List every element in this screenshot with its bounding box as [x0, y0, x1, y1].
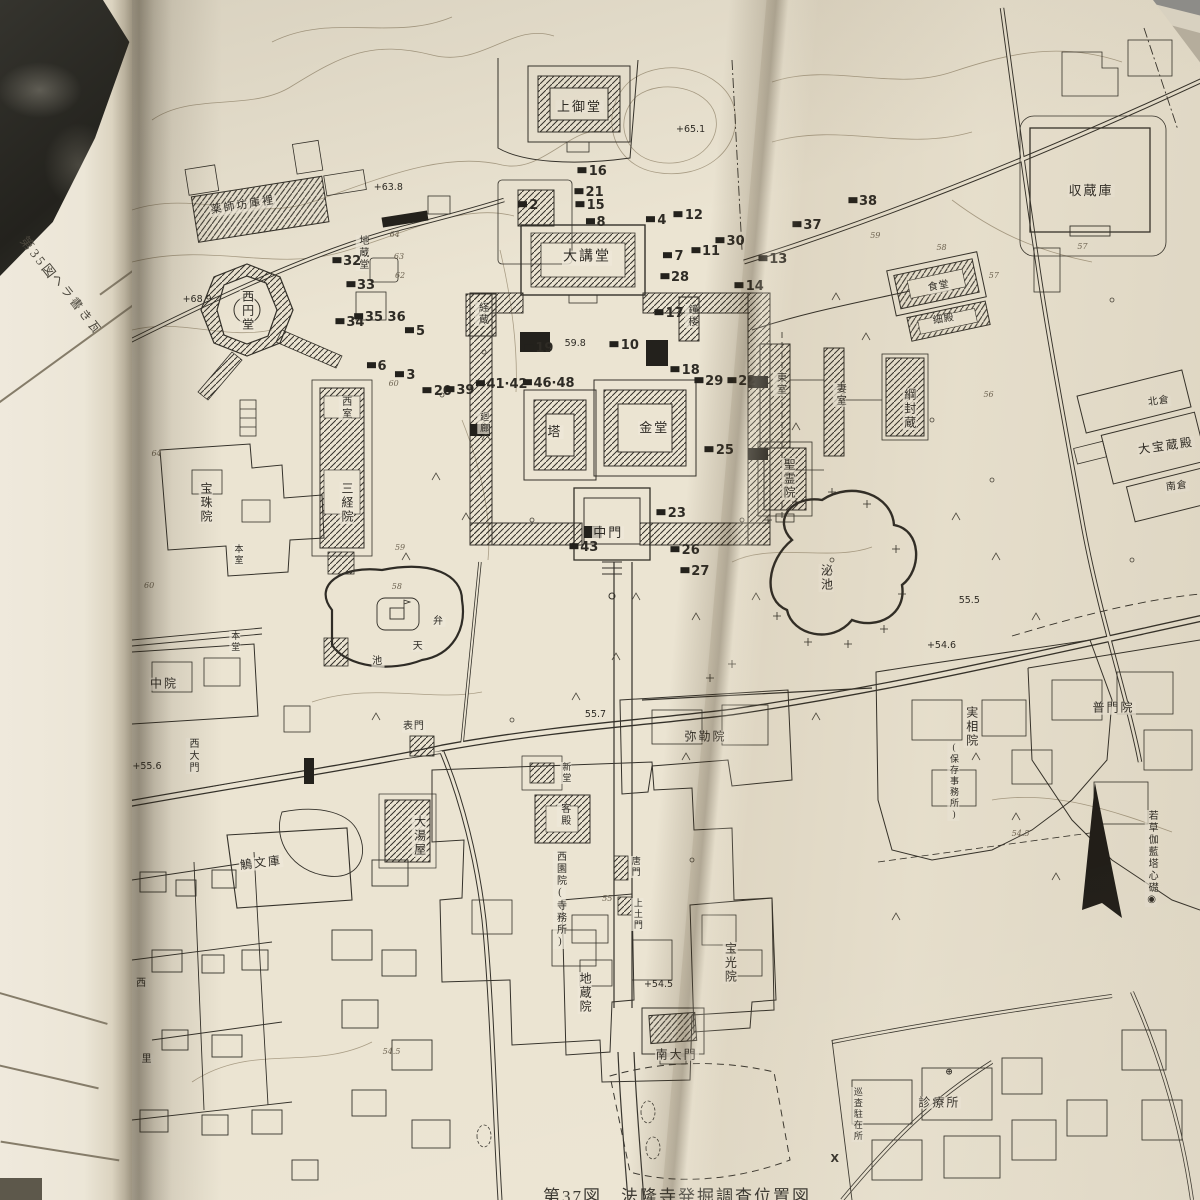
map-label-num: 17 — [655, 308, 684, 322]
map-label-num: 46·48 — [522, 377, 574, 391]
map-label-elev: +54.5 — [644, 980, 673, 990]
map-label-name: 塔 — [546, 425, 563, 439]
map-label-num: 39 — [445, 384, 474, 398]
map-label-name: 中院 — [149, 678, 179, 691]
map-label-name: 薬師坊庫裡 — [209, 195, 277, 217]
map-label-sym: ⊕ — [945, 1068, 953, 1077]
map-label-contour: 58 — [392, 583, 402, 591]
map-label-name-sm: 鐘楼 — [684, 304, 697, 328]
map-label-name-sm: 客殿 — [557, 803, 570, 827]
map-label-name: 大湯屋 — [412, 815, 427, 857]
map-label-num: 41·42 — [475, 378, 527, 392]
map-label-contour: 59 — [870, 232, 880, 240]
map-label-name: 泌池 — [819, 564, 834, 592]
map-label-num: 6 — [367, 360, 387, 374]
map-label-name-sm: 西園院(寺務所) — [553, 851, 566, 949]
left-page-drawing-line — [0, 987, 108, 1024]
map-label-contour: 57 — [1077, 243, 1087, 251]
map-label-name: 地蔵院 — [578, 972, 593, 1014]
map-label-contour: 54.5 — [383, 1048, 401, 1056]
map-label-name: 三経院 — [339, 482, 354, 524]
map-label-contour: 64 — [151, 449, 161, 457]
map-label-name: 聖霊院 — [782, 458, 797, 500]
map-label-contour: 60 — [389, 380, 399, 388]
map-label-name: 普門院 — [1091, 702, 1135, 715]
map-label-contour: 64 — [390, 231, 400, 239]
map-label-num: 14 — [735, 280, 764, 294]
map-label-contour: 63 — [394, 253, 404, 261]
map-label-sym: X — [830, 1153, 838, 1165]
left-page: 第35図 ヘラ書き瓦 — [0, 0, 152, 1200]
map-label-contour: 60 — [144, 581, 154, 589]
map-label-name: 弥勒院 — [684, 731, 728, 744]
map-label-name-sm: 上土門 — [631, 898, 642, 931]
map-label-num: 8 — [585, 216, 605, 230]
map-label-name-sm: 妻室 — [833, 383, 846, 407]
map-label-name: 西円堂 — [240, 290, 255, 332]
map-label-contour: 55 — [602, 895, 612, 903]
map-label-num: 27 — [680, 566, 709, 580]
map-label-num: 2 — [518, 200, 538, 214]
map-label-num: 26 — [671, 544, 700, 558]
map-label-name: 上御堂 — [556, 100, 603, 114]
map-label-name: 宝珠院 — [198, 482, 213, 524]
map-label-elev: 59.8 — [565, 339, 586, 349]
map-label-num: 32 — [332, 255, 361, 269]
map-label-num: 43 — [569, 542, 598, 556]
map-label-elev: +65.1 — [676, 125, 705, 135]
map-label-name-sm: 天 — [412, 642, 425, 653]
map-label-name: 南大門 — [655, 1049, 699, 1062]
map-label-num: 33 — [346, 279, 375, 293]
map-label-name-sm: 表門 — [402, 722, 426, 733]
map-label-num: 23 — [657, 507, 686, 521]
map-label-name: 宝光院 — [723, 942, 738, 984]
map-label-name: 実相院 — [964, 706, 979, 748]
map-label-name-sm: 西室 — [338, 396, 351, 420]
map-label-name-sm: 唐門 — [629, 856, 640, 878]
map-label-name-sm: 里 — [140, 1054, 153, 1065]
map-label-num: 19 — [524, 342, 553, 356]
map-label-name-sm: 若草伽藍塔心礎◉ — [1145, 810, 1158, 907]
map-label-name-sm: 本室 — [232, 544, 243, 566]
map-label-num: 37 — [792, 219, 821, 233]
map-label-num: 35 36 — [354, 311, 406, 325]
map-label-num: 38 — [848, 195, 877, 209]
map-label-name: 鵤文庫 — [239, 854, 284, 872]
map-label-name-sm: 東室 — [773, 372, 786, 396]
map-label-num: 13 — [758, 254, 787, 268]
map-label-name-sm: 本堂 — [229, 631, 240, 653]
map-label-num: 5 — [405, 326, 425, 340]
map-label-num: 15 — [576, 200, 605, 214]
map-label-contour: 59 — [395, 544, 405, 552]
map-label-num: 10 — [610, 339, 639, 353]
figure-caption: 第37図 法隆寺発掘調査位置図 — [543, 1182, 811, 1200]
map-label-elev: 55.5 — [959, 596, 980, 606]
map-label-name: 中門 — [592, 526, 624, 540]
map-label-num: 29 — [694, 375, 723, 389]
left-page-drawing-line — [0, 1063, 99, 1089]
map-label-name-sm: 池 — [371, 657, 384, 668]
map-label-num: 28 — [660, 272, 689, 286]
map-label-name-sm: 細殿 — [931, 313, 956, 328]
map-label-name-sm: 巡査駐在所 — [851, 1087, 862, 1142]
left-page-photo-fragment — [0, 0, 132, 300]
map-label-contour: 57 — [989, 272, 999, 280]
map-label-name-sm: (保存事務所) — [948, 742, 959, 821]
map-label-num: 22 — [727, 375, 756, 389]
map-labels-layer: 上御堂薬師坊庫裡地蔵堂西円堂経蔵鐘楼大講堂西室三経院廻廊塔金堂中門宝珠院本室本堂… — [132, 0, 1200, 1200]
left-page-drawing-line — [99, 270, 132, 295]
left-page-drawing-line — [1, 1141, 120, 1161]
map-label-elev: +55.6 — [132, 762, 161, 772]
map-label-name: 大宝蔵殿 — [1136, 436, 1195, 457]
map-label-name-sm: 北倉 — [1147, 395, 1172, 409]
map-label-name-sm: 廻廊 — [478, 412, 489, 434]
map-label-elev: 55.7 — [585, 710, 606, 720]
map-label-contour: 56 — [983, 391, 993, 399]
map-label-name-sm: 経蔵 — [475, 302, 488, 326]
left-page-drawing-block — [0, 1178, 42, 1200]
map-label-num: 16 — [578, 165, 607, 179]
map-label-num: 11 — [691, 245, 720, 259]
map-label-name-sm: 南倉 — [1164, 480, 1189, 494]
map-label-elev: +68.9 — [183, 295, 212, 305]
map-label-num: 12 — [674, 209, 703, 223]
map-label-contour: 54.5 — [1012, 830, 1030, 838]
map-label-contour: 62 — [395, 272, 405, 280]
map-label-name-sm: 西 — [135, 979, 148, 990]
map-label-name: 綱封蔵 — [902, 388, 917, 430]
map-label-name: 大講堂 — [562, 251, 612, 266]
map-label-elev: +54.6 — [927, 641, 956, 651]
map-label-num: 7 — [663, 250, 683, 264]
map-label-name-sm: 弁 — [432, 616, 445, 627]
map-page: 上御堂薬師坊庫裡地蔵堂西円堂経蔵鐘楼大講堂西室三経院廻廊塔金堂中門宝珠院本室本堂… — [132, 0, 1200, 1200]
map-label-num: 4 — [646, 214, 666, 228]
map-label-contour: 58 — [936, 244, 946, 252]
map-label-name: 金堂 — [638, 422, 670, 436]
map-label-name: 収蔵庫 — [1068, 184, 1115, 198]
book-photo: { "book": { "left_page_caption_line1": "… — [0, 0, 1200, 1200]
map-label-elev: +63.8 — [374, 183, 403, 193]
map-label-num: 25 — [705, 444, 734, 458]
map-label-name-sm: 西大門 — [186, 738, 199, 774]
map-label-name: 診療所 — [917, 1097, 961, 1110]
map-label-name-sm: 新堂 — [560, 762, 571, 784]
map-label-name-sm: 食堂 — [927, 280, 952, 295]
